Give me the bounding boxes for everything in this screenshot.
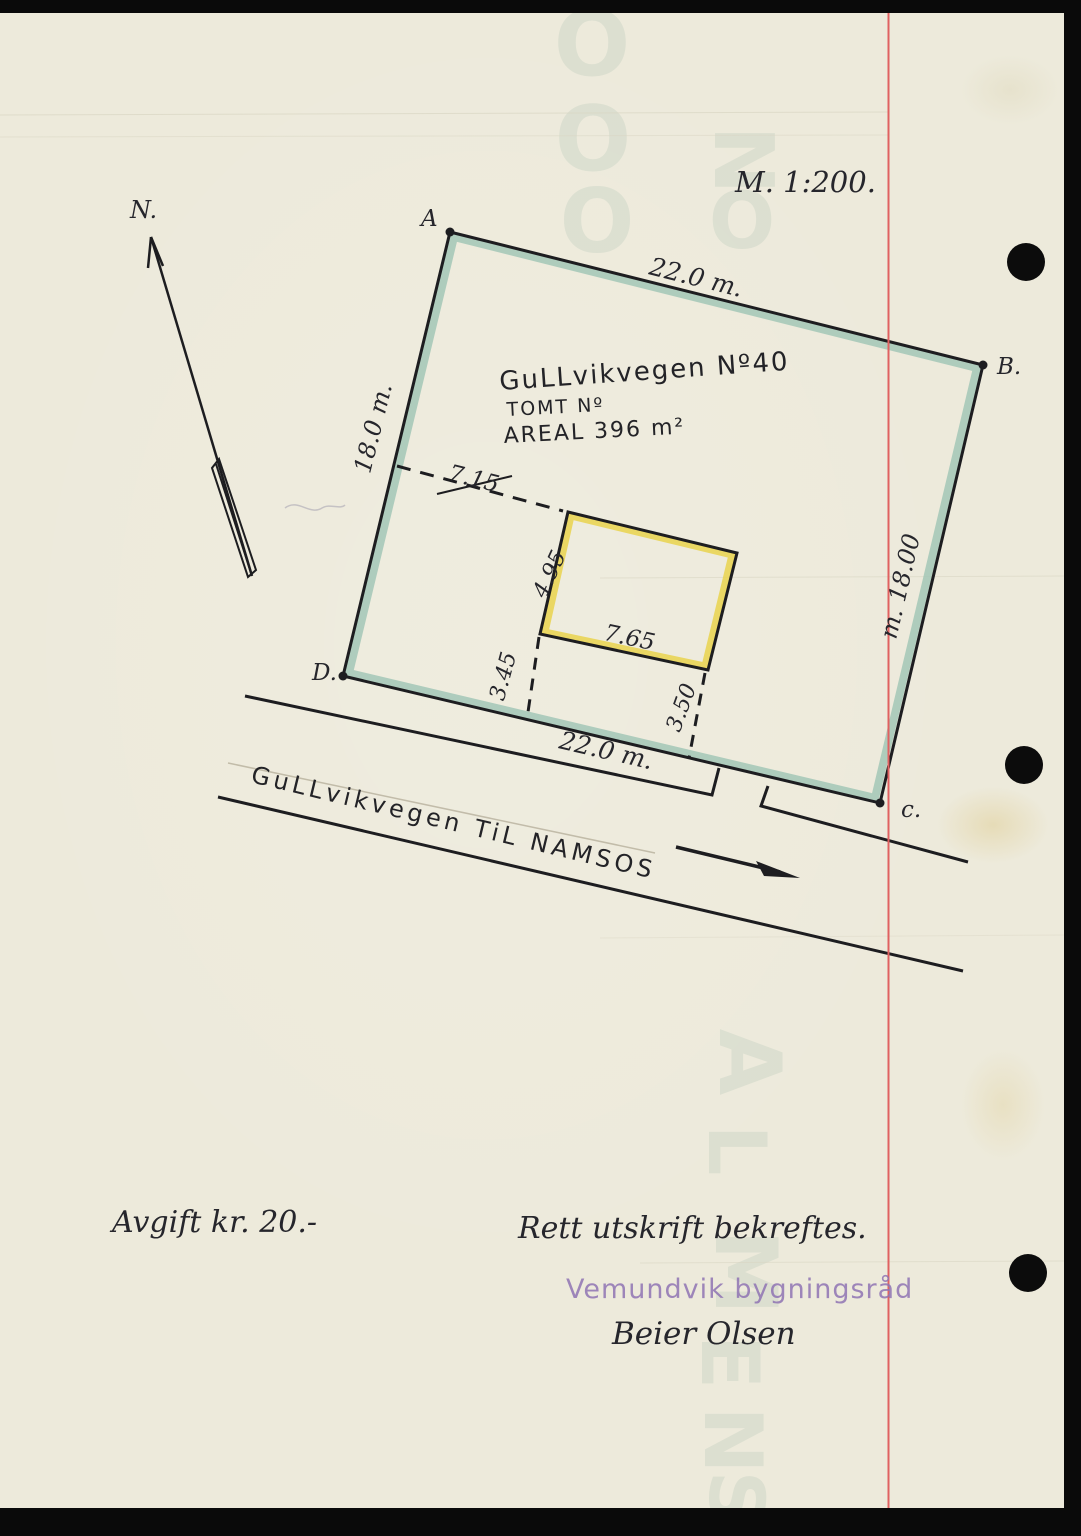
north-arrow — [148, 237, 256, 577]
corner-label-a: A — [419, 206, 438, 232]
road-name-label: GuLLvikvegen TiL NAMSOS — [249, 761, 659, 885]
scan-edge-right — [1064, 0, 1081, 1536]
parcel-street-label: GuLLvikvegen Nº40 — [498, 347, 790, 397]
corner-point-c — [876, 799, 885, 808]
parcel-lot-label: TOMT Nº — [505, 394, 605, 421]
corner-label-c: c. — [901, 797, 921, 823]
setback-south-left-label: 3.45 — [485, 649, 522, 703]
watermark-letter: L — [690, 1125, 783, 1176]
scanned-document: O O O N O A L M E N S — [0, 0, 1081, 1536]
watermark-letter: N — [686, 1407, 779, 1474]
fee-note: Avgift kr. 20.- — [109, 1205, 317, 1240]
watermark-letter: O — [560, 170, 635, 273]
corner-label-d: D. — [311, 660, 337, 686]
watermark-letter: A — [699, 1029, 799, 1096]
municipal-stamp: Vemundvik bygningsråd — [566, 1274, 913, 1305]
corner-point-b — [979, 361, 988, 370]
corner-point-d — [339, 672, 348, 681]
certification-note: Rett utskrift bekreftes. — [517, 1211, 867, 1246]
scale-label: M. 1:200. — [734, 165, 876, 199]
building-front-label: 7.65 — [602, 620, 658, 656]
punch-hole — [1007, 243, 1045, 281]
watermark-letter: O — [554, 0, 631, 97]
pencil-scribble — [285, 505, 345, 510]
setback-south-right-label: 3.50 — [662, 680, 702, 735]
scan-edge-bottom — [0, 1508, 1081, 1536]
building-side-label: 4.95 — [528, 547, 572, 603]
scan-edge-top — [0, 0, 1081, 13]
site-plan-drawing: O O O N O A L M E N S — [0, 0, 1081, 1536]
corner-point-a — [446, 228, 455, 237]
punch-hole — [1005, 746, 1043, 784]
dimension-left: 18.0 m. — [349, 380, 398, 476]
road-edge-lower — [218, 797, 963, 971]
setback-west-label: 7.15 — [446, 460, 502, 498]
signature: Beier Olsen — [611, 1316, 796, 1352]
corner-label-b: B. — [996, 354, 1021, 380]
north-label: N. — [129, 196, 157, 224]
road-direction-arrow — [676, 847, 800, 878]
punch-hole — [1009, 1254, 1047, 1292]
punch-holes — [1005, 243, 1047, 1292]
